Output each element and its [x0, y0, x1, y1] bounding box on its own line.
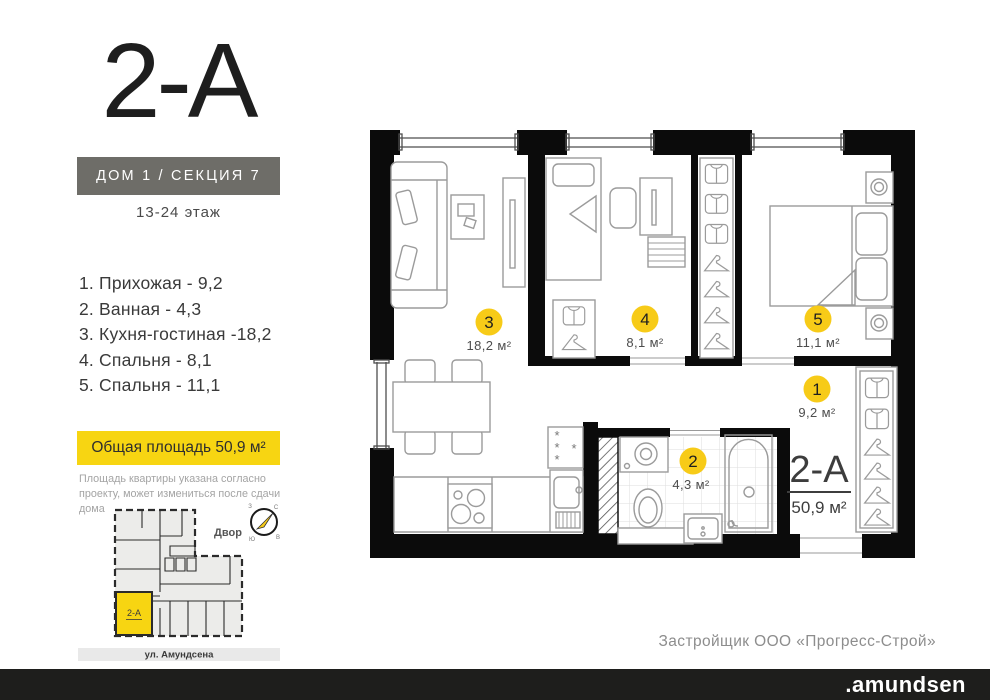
svg-text:*: * — [571, 441, 576, 456]
svg-text:1: 1 — [812, 380, 821, 399]
svg-text:11,1 м²: 11,1 м² — [796, 335, 840, 350]
tv-cabinet — [503, 178, 525, 287]
hallway: 2-А 50,9 м² — [787, 367, 897, 532]
room-bedroom-big — [770, 172, 893, 339]
double-bed — [770, 206, 893, 306]
wardrobe-column — [700, 158, 733, 358]
wardrobe-small — [553, 300, 595, 358]
nightstand — [866, 172, 893, 203]
room-bedroom-small — [546, 158, 685, 358]
vent-shaft — [598, 437, 618, 534]
svg-text:5: 5 — [813, 310, 822, 329]
washing-machine-icon — [620, 437, 668, 472]
svg-text:4: 4 — [640, 310, 649, 329]
svg-text:*: * — [554, 452, 559, 467]
badge-room-1: 1 9,2 м² — [798, 376, 836, 421]
sink-icon — [684, 514, 722, 543]
fridge-place: * * * * — [548, 427, 583, 468]
desk-with-pc — [451, 195, 484, 239]
bath-counter — [618, 528, 693, 544]
svg-text:8,1 м²: 8,1 м² — [626, 335, 664, 350]
svg-text:4,3 м²: 4,3 м² — [672, 477, 710, 492]
brand-logo: .amundsen — [845, 672, 966, 698]
badge-room-3: 3 18,2 м² — [467, 309, 512, 354]
badge-room-5: 5 11,1 м² — [796, 306, 840, 351]
apartment-code: 2-А — [789, 449, 849, 491]
cooktop-icon — [448, 484, 492, 528]
single-bed — [546, 158, 601, 280]
floor-plan: * * * * — [0, 0, 990, 700]
svg-text:18,2 м²: 18,2 м² — [467, 338, 512, 353]
dining-table-chairs — [393, 360, 490, 454]
desk-chair — [610, 178, 672, 235]
sofa — [391, 162, 447, 308]
badge-room-4: 4 8,1 м² — [626, 306, 664, 351]
svg-text:9,2 м²: 9,2 м² — [798, 405, 836, 420]
shelf-unit — [648, 237, 685, 267]
nightstand — [866, 308, 893, 339]
toilet-icon — [634, 489, 662, 527]
svg-text:3: 3 — [484, 313, 493, 332]
kitchen-sink — [550, 470, 583, 532]
apartment-area: 50,9 м² — [791, 498, 846, 517]
brand-bar: .amundsen — [0, 669, 990, 700]
svg-text:2: 2 — [688, 452, 697, 471]
developer-text: Застройщик ООО «Прогресс-Строй» — [659, 633, 936, 651]
hallway-wardrobe — [856, 367, 897, 532]
